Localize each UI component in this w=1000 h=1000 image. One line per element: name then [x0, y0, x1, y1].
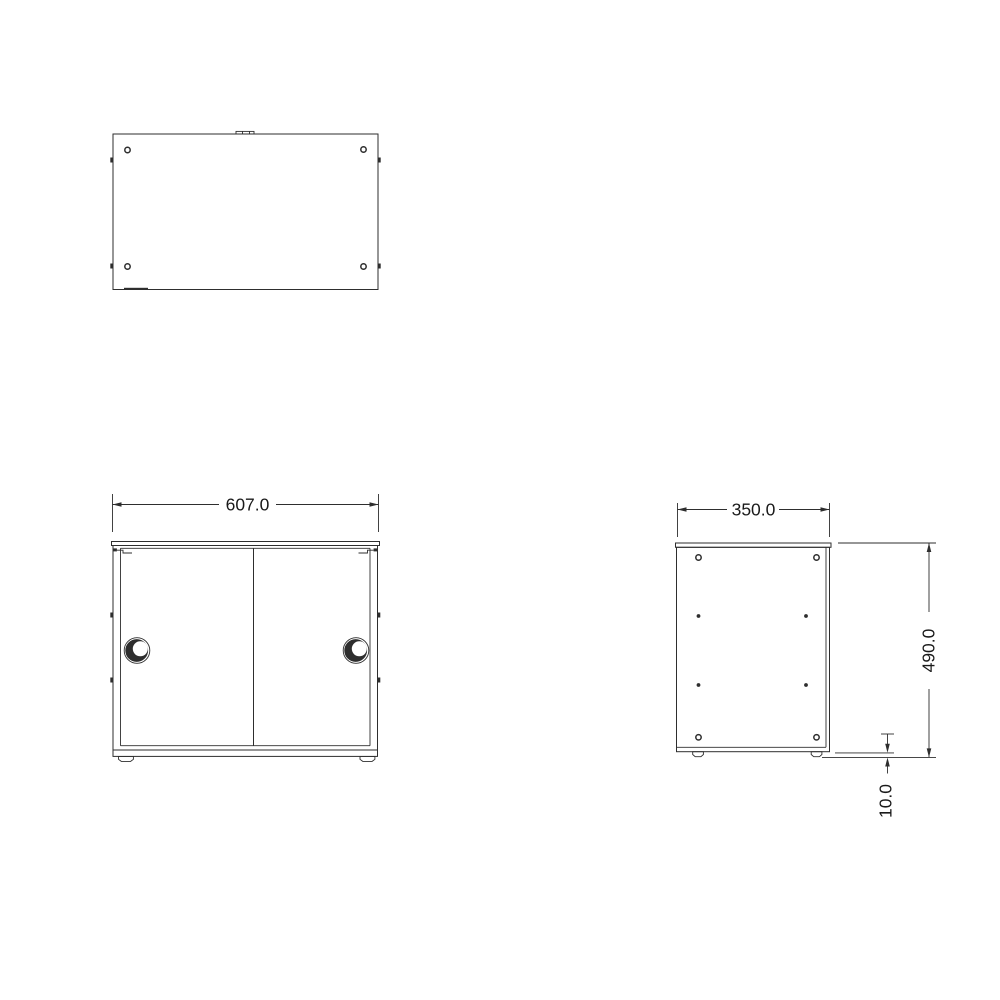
foot-height-dimension-label: 10.0	[876, 784, 896, 818]
side-depth-dimension-label: 350.0	[732, 500, 776, 520]
track-corner-left	[114, 548, 117, 551]
dowel-tick	[378, 264, 381, 269]
arrowhead-up	[885, 758, 890, 767]
arrowhead-bottom	[927, 748, 932, 757]
inner-side-lines	[121, 548, 371, 745]
cam-hole	[814, 735, 819, 740]
cam-hole	[696, 555, 701, 560]
arrowhead-left	[113, 502, 122, 507]
foot-height-dimension: 10.0	[835, 734, 896, 818]
side-height-dimension: 490.0	[822, 543, 939, 757]
screw-hole	[361, 264, 366, 269]
dowel-tick	[378, 678, 381, 683]
top-view-edge-dowels	[110, 158, 380, 269]
front-width-dimension: 607.0	[113, 494, 379, 532]
door-track-step-right	[359, 550, 374, 553]
arrowhead-right	[370, 502, 379, 507]
handle-finger-hole	[133, 641, 148, 656]
side-view-holes	[696, 555, 819, 740]
shelf-pin-hole	[804, 683, 808, 687]
front-view-feet	[119, 756, 375, 761]
shelf-pin-hole	[697, 683, 701, 687]
side-depth-dimension: 350.0	[678, 500, 830, 538]
dowel-tick	[110, 678, 113, 683]
door-track-step-left	[117, 550, 132, 553]
foot-left	[119, 756, 134, 761]
side-view: 350.0	[676, 500, 939, 819]
foot-left	[693, 752, 704, 757]
top-view-screw-holes	[125, 147, 366, 269]
cabinet-outline	[113, 546, 378, 757]
top-panel	[676, 543, 832, 547]
foot-right	[811, 752, 822, 757]
foot-right	[360, 756, 375, 761]
top-edge-fitting	[236, 131, 254, 134]
cabinet-outline	[677, 547, 830, 751]
top-view-outline	[113, 134, 378, 290]
arrowhead-down	[885, 744, 890, 753]
side-height-dimension-label: 490.0	[919, 628, 939, 672]
arrowhead-right	[821, 507, 830, 512]
dowel-tick	[378, 158, 381, 163]
cam-hole	[696, 735, 701, 740]
bottom-edge-fitting	[124, 288, 148, 290]
screw-hole	[125, 264, 130, 269]
dowel-tick	[110, 613, 113, 618]
arrowhead-top	[927, 543, 932, 552]
cabinet-drawing-svg: 607.0	[0, 0, 1000, 1000]
front-width-dimension-label: 607.0	[226, 495, 270, 515]
front-cabinet-body	[110, 542, 380, 757]
shelf-pin-hole	[697, 614, 701, 618]
handle-finger-hole	[352, 641, 367, 656]
arrowhead-left	[678, 507, 687, 512]
front-view: 607.0	[110, 494, 380, 761]
screw-hole	[361, 147, 366, 152]
handle-right	[343, 638, 369, 664]
side-cabinet-body	[676, 543, 832, 757]
top-panel	[112, 542, 380, 546]
dowel-tick	[378, 613, 381, 618]
dowel-tick	[110, 158, 113, 163]
handle-left	[124, 638, 150, 664]
dowel-tick	[110, 264, 113, 269]
cam-hole	[814, 555, 819, 560]
track-corner-right	[374, 548, 377, 551]
technical-drawing-canvas: 607.0	[0, 0, 1000, 1000]
fitting-outline	[236, 131, 254, 134]
top-view	[110, 131, 380, 290]
shelf-pin-hole	[804, 614, 808, 618]
screw-hole	[125, 147, 130, 152]
